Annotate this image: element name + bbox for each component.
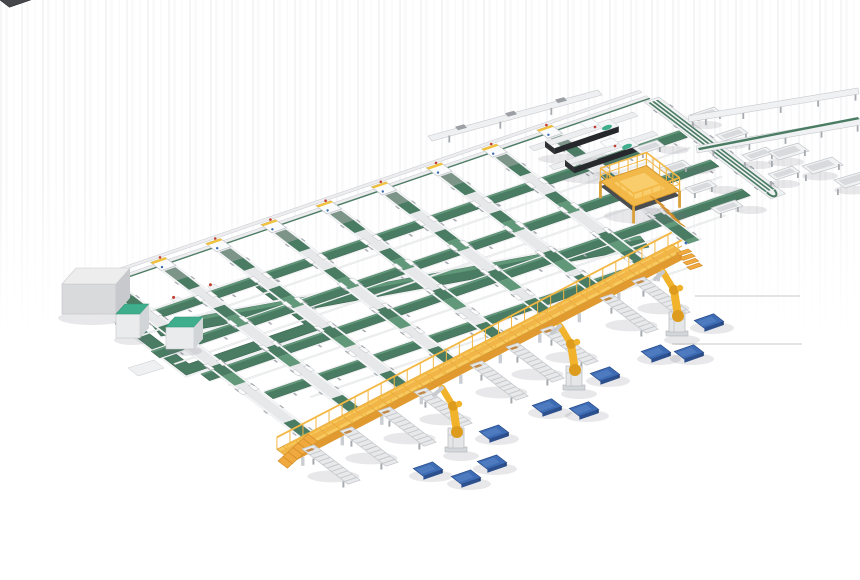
drop-shadow	[443, 451, 479, 461]
factory-render-canvas	[0, 0, 860, 580]
lane-leg	[480, 375, 482, 381]
scanner-machines	[0, 0, 658, 184]
head-blue-dot	[216, 247, 218, 249]
drop-shadow	[802, 172, 838, 181]
belt-leg	[444, 261, 449, 264]
belt-leg	[453, 219, 458, 222]
gray-cabinet-front	[62, 284, 116, 314]
robot-base-joint	[569, 364, 581, 376]
head-blue-dot	[437, 171, 439, 173]
lane-leg	[510, 398, 512, 404]
belt-leg	[408, 234, 413, 237]
lane-leg	[350, 441, 352, 447]
head-red-dot	[490, 143, 493, 146]
head-red-dot	[324, 199, 327, 202]
robot-counterweight	[574, 339, 580, 345]
walkway-leg	[499, 354, 502, 363]
head-blue-dot	[271, 228, 273, 230]
belt-leg	[489, 246, 494, 249]
infeed-leg	[448, 136, 450, 143]
belt-leg	[406, 314, 411, 317]
belt-leg	[673, 143, 678, 146]
lane-leg	[550, 340, 552, 346]
rail-leg	[712, 150, 714, 156]
robot-counterweight	[456, 401, 462, 407]
belt-leg	[318, 345, 323, 348]
head-red-dot	[545, 124, 548, 127]
lane-leg	[640, 331, 642, 337]
lane-leg	[342, 482, 344, 488]
rail-leg	[817, 101, 819, 107]
bin-leg	[797, 173, 799, 178]
rail-leg	[785, 138, 787, 144]
belt-leg	[494, 284, 499, 287]
rail-leg	[821, 132, 823, 138]
rail-leg	[742, 113, 744, 119]
bin-leg	[711, 187, 713, 192]
head-red-dot	[269, 218, 272, 221]
belt-leg	[232, 294, 237, 297]
head-blue-dot	[547, 134, 549, 136]
buffer-cabinet-front	[116, 314, 140, 338]
belt-leg	[538, 269, 543, 272]
loop-marker	[209, 283, 212, 286]
lane-leg	[546, 380, 548, 386]
walkway-leg	[538, 334, 541, 343]
head-blue-dot	[161, 266, 163, 268]
rail-leg	[857, 126, 859, 132]
lane-leg	[424, 402, 426, 408]
platform-leg	[678, 191, 681, 208]
buffer-cabinet-front	[166, 327, 194, 349]
belt-leg	[188, 310, 193, 313]
lane-leg	[418, 444, 420, 450]
walkway-leg	[301, 457, 304, 466]
platform-leg	[632, 207, 635, 224]
robot-base-joint	[672, 310, 684, 322]
belt-leg	[364, 249, 369, 252]
bin-leg	[685, 167, 687, 172]
head-red-dot	[435, 162, 438, 165]
belt-leg	[224, 337, 229, 340]
drop-shadow	[768, 158, 804, 167]
bin-leg	[837, 189, 839, 195]
walkway-leg	[341, 436, 344, 445]
lane-leg	[380, 464, 382, 470]
head-red-dot	[159, 256, 162, 259]
bin-leg	[659, 147, 661, 152]
bin-leg	[838, 164, 840, 170]
machine-body	[0, 0, 74, 7]
head-blue-dot	[326, 209, 328, 211]
walkway-leg	[459, 375, 462, 384]
platform-leg	[599, 181, 602, 198]
belt-leg	[268, 322, 273, 325]
machine-red-dot	[594, 126, 597, 129]
walkway-leg	[578, 313, 581, 322]
rail-leg	[855, 95, 857, 101]
bin-leg	[805, 175, 807, 181]
robot-counterweight	[677, 285, 683, 291]
rail-leg	[705, 119, 707, 125]
bin-leg	[770, 181, 772, 186]
drop-shadow	[768, 180, 800, 188]
loop-marker	[172, 296, 175, 299]
drop-shadow	[561, 389, 597, 399]
drop-shadow	[664, 335, 700, 345]
robot-base-joint	[451, 426, 463, 438]
machine-red-dot	[614, 145, 617, 148]
lane-leg	[388, 421, 390, 427]
robot-wrist	[434, 388, 442, 395]
bin-leg	[692, 122, 694, 127]
transfer-rail	[688, 88, 859, 122]
lane-leg	[516, 357, 518, 363]
bin-leg	[737, 207, 739, 212]
head-red-dot	[214, 237, 217, 240]
rail-leg	[749, 144, 751, 150]
head-blue-dot	[382, 190, 384, 192]
drop-shadow	[604, 208, 688, 224]
head-blue-dot	[492, 153, 494, 155]
belt-leg	[362, 330, 367, 333]
factory-render-stage	[0, 0, 860, 580]
lane-leg	[610, 308, 612, 314]
loop-outfeed-stub	[128, 360, 164, 376]
bin-leg	[804, 150, 806, 156]
rail-leg	[780, 107, 782, 113]
infeed-leg	[550, 108, 552, 115]
lane-leg	[642, 291, 644, 297]
belt-leg	[293, 393, 298, 396]
head-red-dot	[380, 181, 383, 184]
bin-leg	[720, 213, 722, 218]
sensor-dot	[685, 242, 688, 245]
walkway-leg	[380, 416, 383, 425]
belt-leg	[514, 317, 519, 320]
belt-leg	[337, 378, 342, 381]
lane-leg	[312, 459, 314, 465]
infeed-leg	[499, 122, 501, 129]
bin-leg	[744, 162, 746, 167]
bin-leg	[694, 193, 696, 198]
belt-leg	[273, 360, 278, 363]
bin-leg	[771, 161, 773, 167]
